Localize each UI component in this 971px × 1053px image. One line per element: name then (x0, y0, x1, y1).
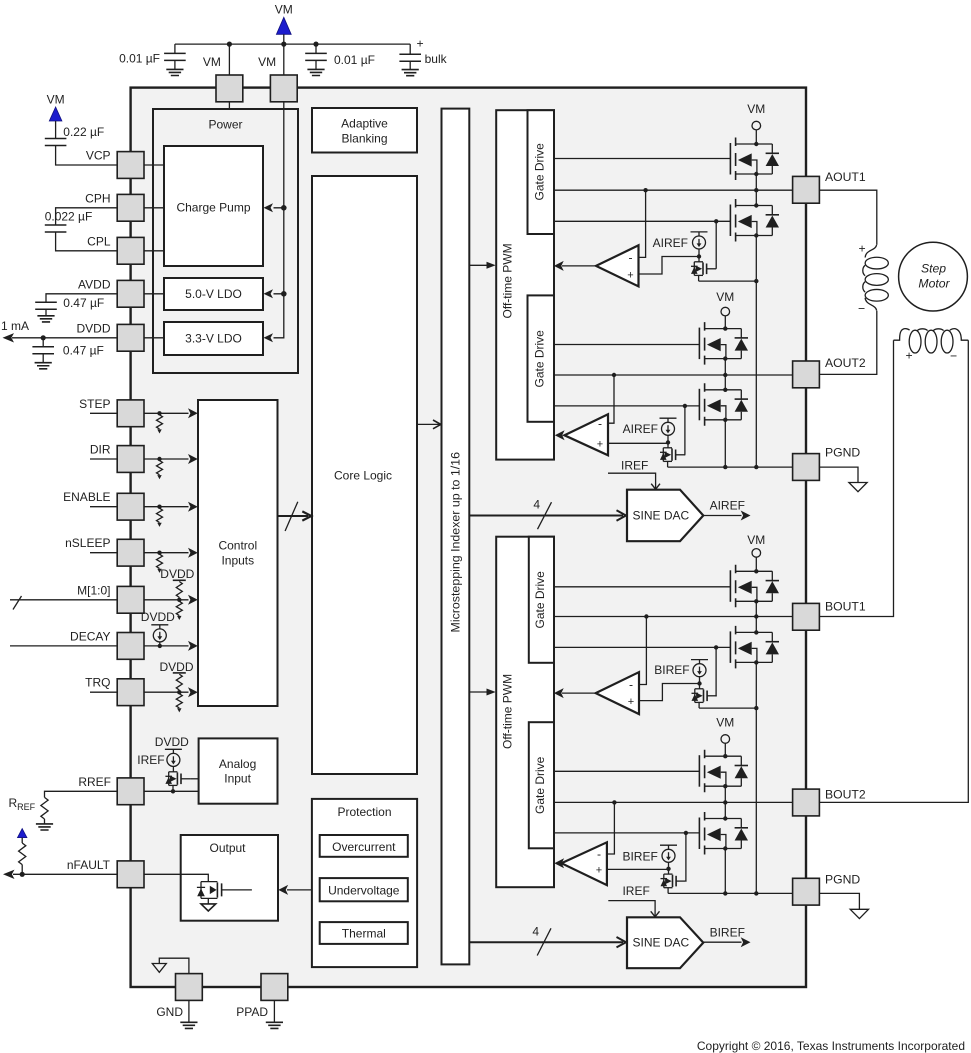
svg-text:DVDD: DVDD (76, 321, 110, 335)
svg-text:3.3-V LDO: 3.3-V LDO (185, 331, 242, 345)
svg-text:VM: VM (747, 102, 765, 116)
svg-text:VM: VM (47, 93, 65, 107)
svg-text:AVDD: AVDD (78, 277, 111, 291)
svg-text:Protection: Protection (337, 805, 391, 819)
svg-text:STEP: STEP (79, 397, 110, 411)
svg-text:BOUT2: BOUT2 (825, 788, 866, 802)
svg-text:CPH: CPH (85, 191, 110, 205)
svg-text:Microstepping Indexer up to 1/: Microstepping Indexer up to 1/16 (449, 452, 463, 633)
svg-text:AIREF: AIREF (710, 498, 745, 512)
svg-text:-: - (628, 251, 632, 265)
svg-text:PGND: PGND (825, 873, 860, 887)
svg-text:Gate Drive: Gate Drive (533, 330, 547, 388)
svg-text:-: - (597, 847, 601, 861)
svg-text:Control: Control (218, 539, 257, 553)
svg-text:bulk: bulk (425, 52, 448, 66)
svg-text:BIREF: BIREF (710, 926, 745, 940)
svg-text:0.01 µF: 0.01 µF (334, 53, 375, 67)
svg-text:Off-time PWM: Off-time PWM (501, 674, 515, 749)
svg-text:AOUT1: AOUT1 (825, 170, 866, 184)
svg-text:DVDD: DVDD (141, 610, 175, 624)
svg-text:RREF: RREF (78, 775, 111, 789)
svg-text:Power: Power (208, 118, 242, 132)
svg-text:DVDD: DVDD (155, 735, 189, 749)
svg-text:+: + (597, 439, 603, 451)
svg-text:0.022 µF: 0.022 µF (45, 210, 93, 224)
svg-text:CPL: CPL (87, 234, 111, 248)
svg-text:Gate Drive: Gate Drive (533, 571, 547, 629)
svg-text:SINE DAC: SINE DAC (633, 509, 690, 523)
svg-text:PPAD: PPAD (236, 1005, 268, 1019)
svg-text:5.0-V LDO: 5.0-V LDO (185, 287, 242, 301)
svg-text:Motor: Motor (918, 277, 950, 291)
svg-text:4: 4 (532, 924, 539, 938)
svg-text:BIREF: BIREF (622, 850, 657, 864)
svg-text:Adaptive: Adaptive (341, 117, 388, 131)
svg-text:Copyright © 2016, Texas Instru: Copyright © 2016, Texas Instruments Inco… (697, 1039, 965, 1053)
svg-text:AOUT2: AOUT2 (825, 356, 866, 370)
svg-text:Output: Output (209, 841, 246, 855)
svg-text:DVDD: DVDD (159, 660, 193, 674)
svg-text:Analog: Analog (219, 757, 256, 771)
svg-text:+: + (906, 349, 913, 363)
svg-text:+: + (417, 37, 424, 51)
svg-text:Core Logic: Core Logic (334, 468, 392, 482)
svg-text:+: + (859, 242, 866, 256)
svg-text:nSLEEP: nSLEEP (65, 536, 110, 550)
svg-text:Gate Drive: Gate Drive (533, 143, 547, 201)
svg-text:AIREF: AIREF (653, 236, 688, 250)
svg-text:BIREF: BIREF (654, 663, 689, 677)
svg-text:Overcurrent: Overcurrent (332, 840, 396, 854)
svg-text:VM: VM (747, 533, 765, 547)
svg-text:VM: VM (716, 716, 734, 730)
svg-text:0.47 µF: 0.47 µF (63, 296, 104, 310)
svg-text:TRQ: TRQ (85, 676, 110, 690)
svg-text:nFAULT: nFAULT (67, 858, 111, 872)
svg-text:M[1:0]: M[1:0] (77, 583, 110, 597)
svg-text:0.47 µF: 0.47 µF (63, 344, 104, 358)
svg-text:+: + (596, 865, 602, 877)
svg-text:IREF: IREF (621, 458, 648, 472)
svg-text:0.22 µF: 0.22 µF (63, 125, 104, 139)
svg-text:−: − (858, 302, 865, 316)
svg-text:GND: GND (156, 1005, 183, 1019)
svg-text:DIR: DIR (90, 443, 111, 457)
svg-text:+: + (627, 269, 633, 281)
svg-text:IREF: IREF (137, 753, 164, 767)
svg-text:Input: Input (224, 772, 251, 786)
svg-text:Inputs: Inputs (221, 554, 254, 568)
svg-text:IREF: IREF (622, 884, 649, 898)
svg-text:BOUT1: BOUT1 (825, 600, 866, 614)
svg-text:RREF: RREF (9, 796, 36, 812)
svg-text:DECAY: DECAY (70, 629, 110, 643)
svg-text:Off-time PWM: Off-time PWM (501, 243, 515, 318)
svg-text:DVDD: DVDD (160, 567, 194, 581)
svg-text:SINE DAC: SINE DAC (633, 936, 690, 950)
svg-text:-: - (598, 416, 602, 430)
svg-text:4: 4 (533, 498, 540, 512)
svg-text:PGND: PGND (825, 446, 860, 460)
svg-text:0.01 µF: 0.01 µF (119, 52, 160, 66)
svg-text:VCP: VCP (86, 149, 111, 163)
svg-text:1 mA: 1 mA (1, 319, 29, 333)
svg-text:AIREF: AIREF (623, 422, 658, 436)
svg-text:Charge Pump: Charge Pump (176, 200, 250, 214)
svg-text:Thermal: Thermal (342, 927, 386, 941)
svg-text:-: - (629, 678, 633, 692)
svg-text:VM: VM (203, 55, 221, 69)
svg-text:VM: VM (258, 55, 276, 69)
svg-text:−: − (950, 349, 957, 363)
svg-text:Step: Step (921, 262, 946, 276)
svg-text:Gate Drive: Gate Drive (533, 756, 547, 814)
svg-text:VM: VM (716, 290, 734, 304)
svg-text:Blanking: Blanking (341, 131, 387, 145)
svg-text:Undervoltage: Undervoltage (328, 884, 400, 898)
svg-text:+: + (628, 696, 634, 708)
svg-text:ENABLE: ENABLE (63, 490, 110, 504)
svg-text:VM: VM (275, 3, 293, 17)
